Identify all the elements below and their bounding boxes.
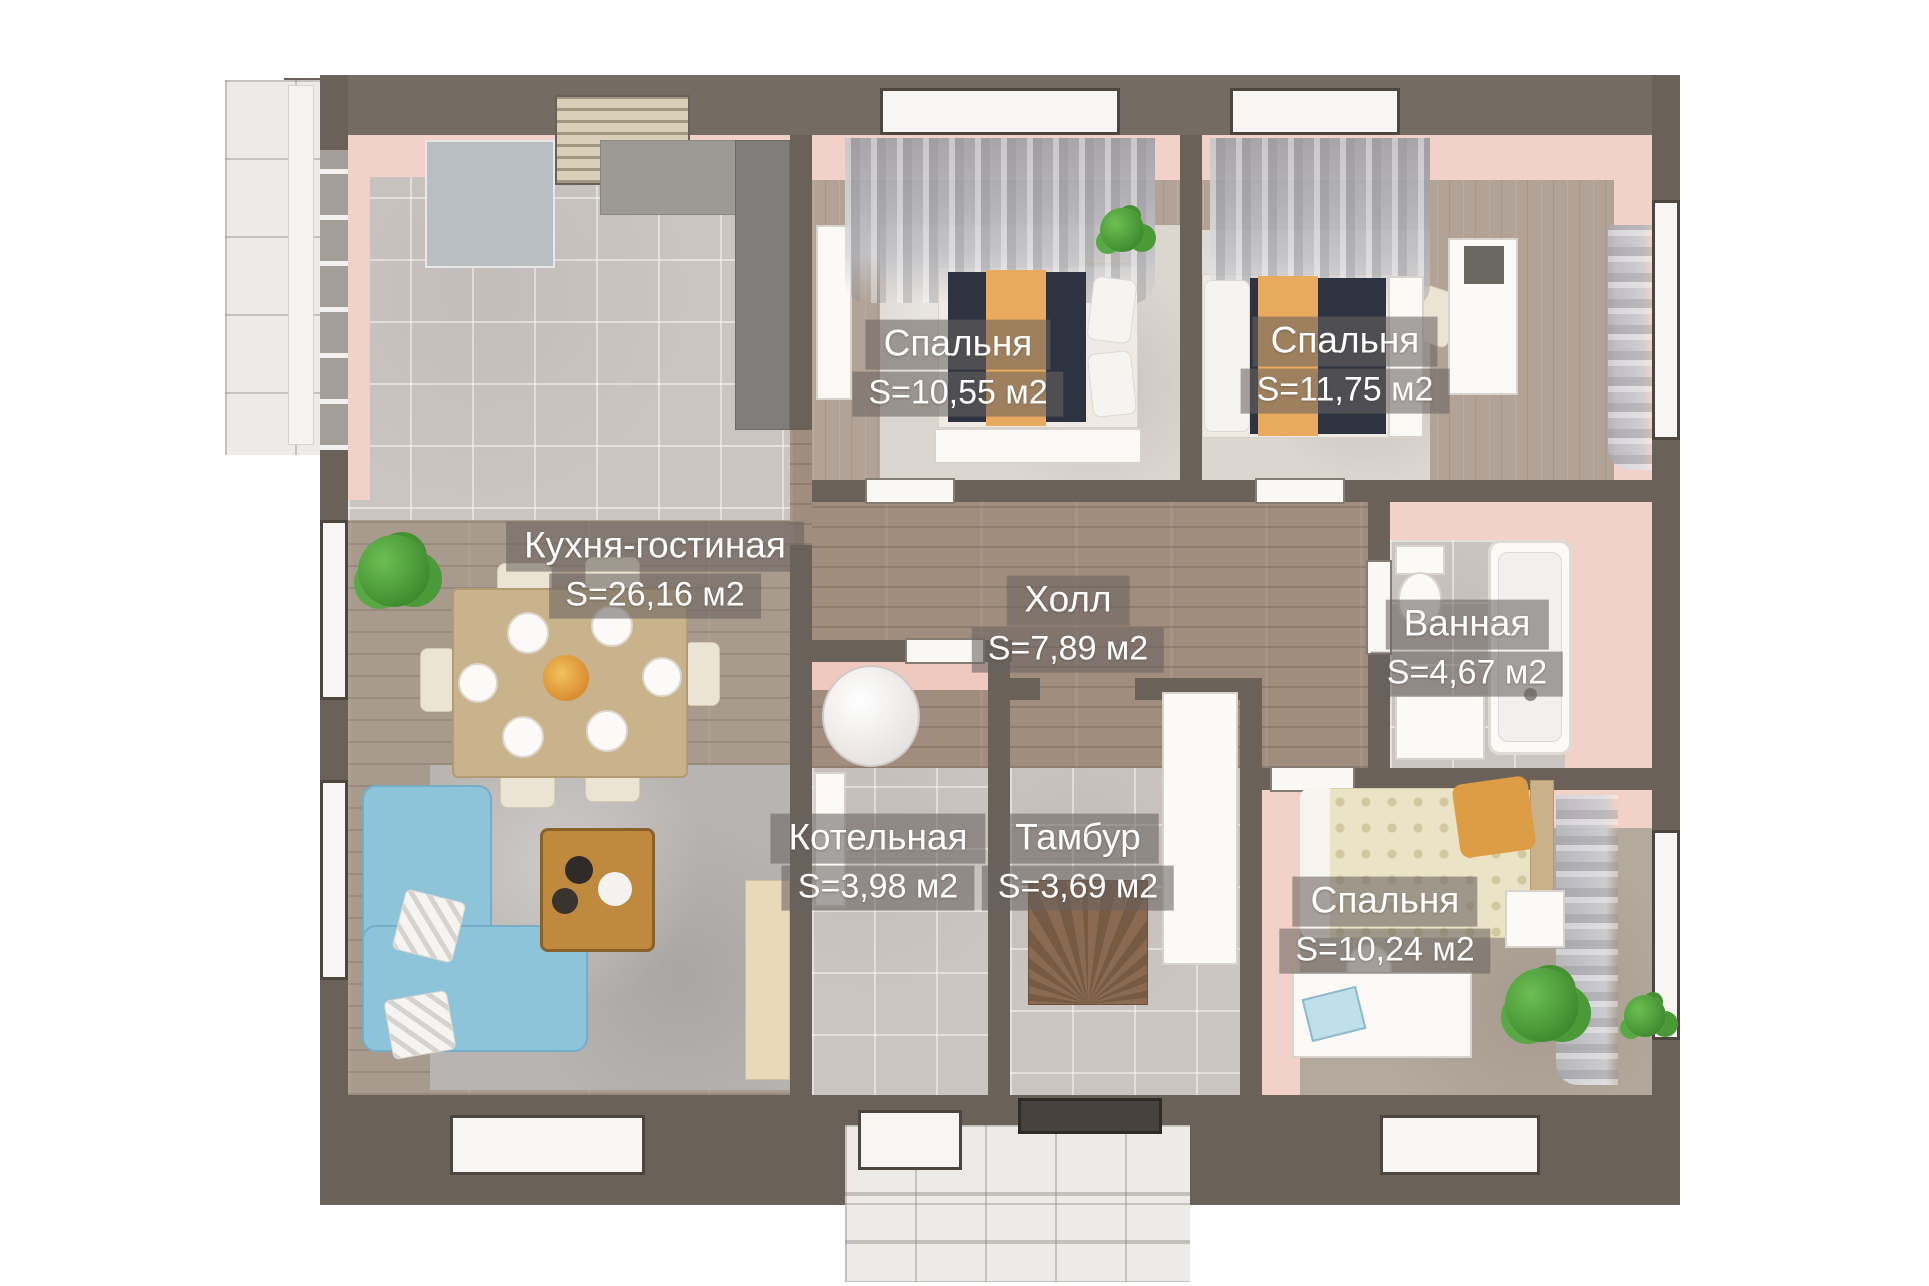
- floor-plan-stage: Спальня S=10,55 м2 Спальня S=11,75 м2 Ку…: [0, 0, 1929, 1286]
- wall-under-bedrooms-a: [812, 480, 865, 502]
- toilet-tank: [1395, 545, 1445, 575]
- boiler-tank: [822, 665, 920, 767]
- coffee-table-plate-white: [598, 872, 632, 906]
- wall-under-bedrooms-b: [955, 480, 1255, 502]
- room-name: Спальня: [866, 320, 1051, 370]
- bedroom2-door: [1255, 478, 1345, 504]
- bedroom3-plant-large: [1505, 968, 1579, 1042]
- room-area: S=3,98 м2: [782, 865, 974, 910]
- living-window-bottom: [450, 1115, 645, 1175]
- room-area: S=7,89 м2: [972, 627, 1164, 672]
- bedroom2-desk-item: [1464, 246, 1504, 284]
- wall-vestibule-right: [1240, 678, 1262, 1095]
- dining-chair-right: [684, 642, 720, 706]
- boiler-window-bottom: [858, 1110, 962, 1170]
- front-door: [1018, 1098, 1162, 1134]
- wall-between-bedrooms: [1180, 135, 1202, 480]
- terrace-sliding-door: [320, 150, 348, 450]
- room-name: Спальня: [1253, 317, 1438, 367]
- room-area: S=4,67 м2: [1371, 651, 1563, 696]
- kitchen-wall-face-left: [348, 135, 370, 500]
- room-name: Холл: [1006, 576, 1129, 626]
- bathroom-wall-face-top: [1390, 502, 1565, 540]
- room-name: Тамбур: [997, 814, 1159, 864]
- wall-under-bedrooms-c: [1345, 480, 1652, 502]
- bedroom2-window-right: [1652, 200, 1680, 440]
- room-name: Котельная: [770, 814, 985, 864]
- coffee-table-tray-dark-1: [565, 856, 593, 884]
- dining-chair-left: [420, 648, 456, 712]
- coffee-table-tray-dark-2: [552, 888, 578, 914]
- room-name: Ванная: [1386, 600, 1549, 650]
- room-name: Спальня: [1293, 877, 1478, 927]
- living-window-left-2: [320, 780, 348, 980]
- fruit-bowl: [543, 655, 589, 701]
- bedroom1-bed-pillow-1: [1086, 276, 1137, 345]
- label-bathroom: Ванная S=4,67 м2: [1371, 600, 1563, 697]
- dining-plate-3: [502, 716, 544, 758]
- bedroom1-plant: [1100, 208, 1144, 252]
- label-bedroom-top-right: Спальня S=11,75 м2: [1241, 317, 1450, 414]
- room-area: S=11,75 м2: [1241, 368, 1450, 413]
- fridge: [425, 140, 555, 268]
- porch-step-line-2: [845, 1240, 1190, 1244]
- room-area: S=26,16 м2: [549, 573, 760, 618]
- wall-kitchen-divider-upper: [790, 135, 812, 430]
- label-bedroom-bottom-right: Спальня S=10,24 м2: [1279, 877, 1490, 974]
- terrace-column: [288, 85, 314, 445]
- bathroom-wall-face-right: [1565, 502, 1652, 768]
- room-area: S=10,55 м2: [852, 371, 1063, 416]
- bedroom1-window: [880, 88, 1120, 135]
- wall-boiler-top-a: [812, 640, 905, 662]
- bedroom2-curtain-right: [1608, 225, 1652, 470]
- kitchen-tall-cabinet: [735, 140, 790, 430]
- bathroom-sink-cabinet: [1395, 695, 1485, 760]
- bedroom3-plant-small: [1624, 995, 1666, 1037]
- dining-plate-6: [642, 657, 682, 697]
- living-window-left-1: [320, 520, 348, 700]
- living-plant: [358, 535, 430, 607]
- label-boiler-room: Котельная S=3,98 м2: [770, 814, 985, 911]
- label-bedroom-top-left: Спальня S=10,55 м2: [852, 320, 1063, 417]
- bedroom3-curtain-right: [1556, 795, 1618, 1085]
- room-area: S=3,69 м2: [982, 865, 1174, 910]
- bedroom1-bed-pillow-2: [1087, 350, 1137, 418]
- bedroom3-nightstand: [1505, 890, 1565, 948]
- dining-plate-4: [586, 710, 628, 752]
- label-vestibule: Тамбур S=3,69 м2: [982, 814, 1174, 911]
- dining-plate-5: [458, 663, 498, 703]
- room-name: Кухня-гостиная: [506, 522, 804, 572]
- bedroom1-bed-bench: [934, 428, 1142, 464]
- bedroom2-window: [1230, 88, 1400, 135]
- label-kitchen-living: Кухня-гостиная S=26,16 м2: [506, 522, 804, 619]
- label-hall: Холл S=7,89 м2: [972, 576, 1164, 673]
- room-area: S=10,24 м2: [1279, 928, 1490, 973]
- bedroom1-door: [865, 478, 955, 504]
- sofa-pillow-2: [383, 990, 456, 1060]
- bedroom3-pillow-orange: [1451, 775, 1537, 859]
- porch-step-line-1: [845, 1192, 1190, 1196]
- wall-vestibule-top-a: [1010, 678, 1040, 700]
- wall-bathroom-left-a: [1368, 502, 1390, 560]
- bedroom3-window-bottom: [1380, 1115, 1540, 1175]
